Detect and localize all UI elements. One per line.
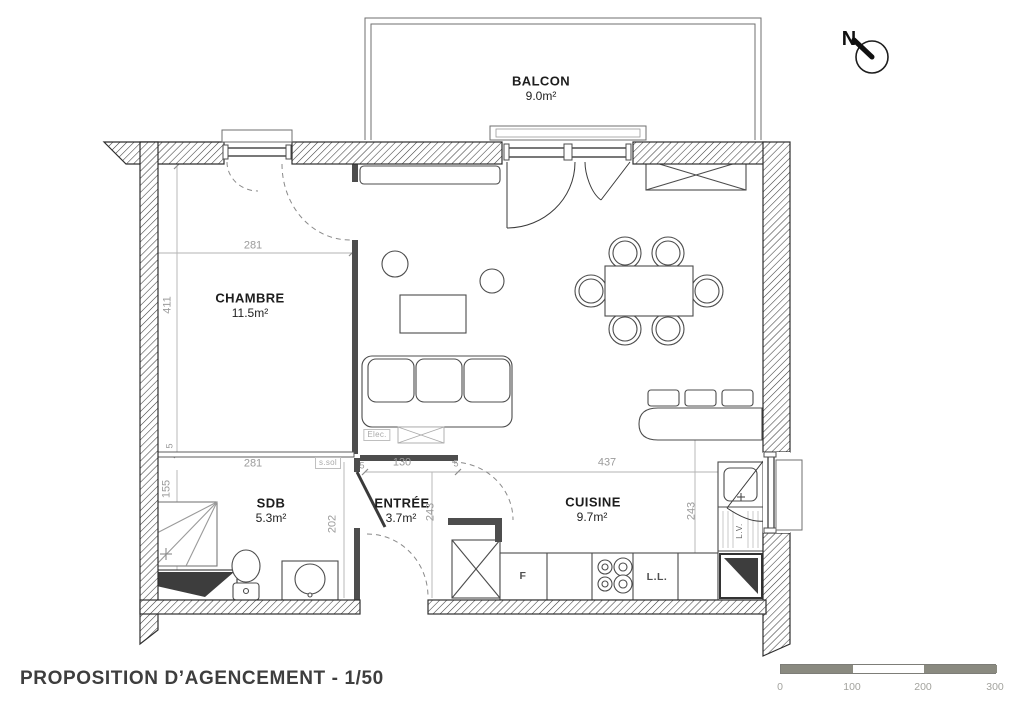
bathroom-cabinet: [150, 570, 237, 600]
shower: [155, 502, 217, 566]
room-name-balcon: BALCON: [512, 75, 570, 88]
room-area-cuisine: 9.7m²: [577, 511, 608, 523]
washing-machine-label: L.L.: [647, 572, 668, 583]
dim-wall-2: 5: [359, 462, 364, 471]
side-table-2: [480, 269, 504, 293]
bar-counter: [639, 390, 762, 440]
compass-north-label: N: [842, 29, 856, 49]
electrical-cabinet: [398, 427, 444, 443]
scale-tick-0: 0: [777, 681, 783, 693]
bar-stool-2: [685, 390, 716, 406]
room-name-cuisine: CUISINE: [565, 496, 621, 509]
fridge-label: F: [520, 571, 527, 582]
dim-cuisine-height: 243: [687, 502, 698, 520]
dark-appliance: [720, 554, 762, 598]
scale-tick-100: 100: [843, 681, 861, 693]
bathroom-furniture: [150, 502, 338, 600]
sofa: [362, 356, 512, 427]
washbasin: [282, 561, 338, 600]
scale-bar-segment: [924, 665, 997, 673]
bar-stool: [648, 390, 679, 406]
dim-entree-width: 130: [393, 458, 411, 469]
electrical-label: Elec.: [363, 429, 390, 441]
room-name-chambre: CHAMBRE: [215, 292, 284, 305]
dim-wall-3: 5: [453, 460, 458, 469]
room-area-balcon: 9.0m²: [526, 90, 557, 102]
dim-sdb-width: 281: [244, 459, 262, 470]
bedroom-window: [222, 130, 292, 159]
tall-cabinet: [452, 540, 500, 598]
balcony-french-door: [490, 126, 646, 160]
room-area-entree: 3.7m²: [386, 512, 417, 524]
sideboard: [360, 166, 500, 184]
scale-bar: [780, 664, 996, 674]
balcony-door-leaves: [507, 162, 630, 228]
dim-sdb-wall: 202: [328, 515, 339, 533]
dim-chambre-width: 281: [244, 241, 262, 252]
page-title: PROPOSITION D’AGENCEMENT - 1/50: [20, 668, 384, 690]
compass-icon: [854, 40, 888, 73]
floor-plan-canvas: N BALCON 9.0m² CHAMBRE 11.5m² SDB 5.3m² …: [0, 0, 1024, 727]
room-name-entree: ENTRÉE: [374, 497, 429, 510]
dim-cuisine-width: 437: [598, 458, 616, 469]
scale-tick-300: 300: [986, 681, 1004, 693]
dim-wall-1: 5: [166, 443, 175, 448]
kitchen-counter: [500, 553, 718, 600]
coffee-table: [400, 295, 466, 333]
toilet: [232, 550, 260, 600]
room-area-sdb: 5.3m²: [256, 512, 287, 524]
side-table: [382, 251, 408, 277]
room-area-chambre: 11.5m²: [232, 307, 268, 319]
scale-bar-segment: [781, 665, 853, 673]
dining-table: [605, 266, 693, 316]
dim-sdb-height: 155: [162, 480, 173, 498]
dishwasher-label: L.V.: [736, 523, 744, 539]
floor-box-label: s.sol: [315, 457, 341, 469]
dim-chambre-height: 411: [163, 296, 174, 314]
floor-plan-drawing: [0, 0, 1024, 727]
room-name-sdb: SDB: [257, 497, 286, 510]
kitchen-window: [763, 452, 802, 533]
dim-entree-height: 243: [426, 503, 437, 521]
scale-tick-200: 200: [914, 681, 932, 693]
bar-stool-3: [722, 390, 753, 406]
